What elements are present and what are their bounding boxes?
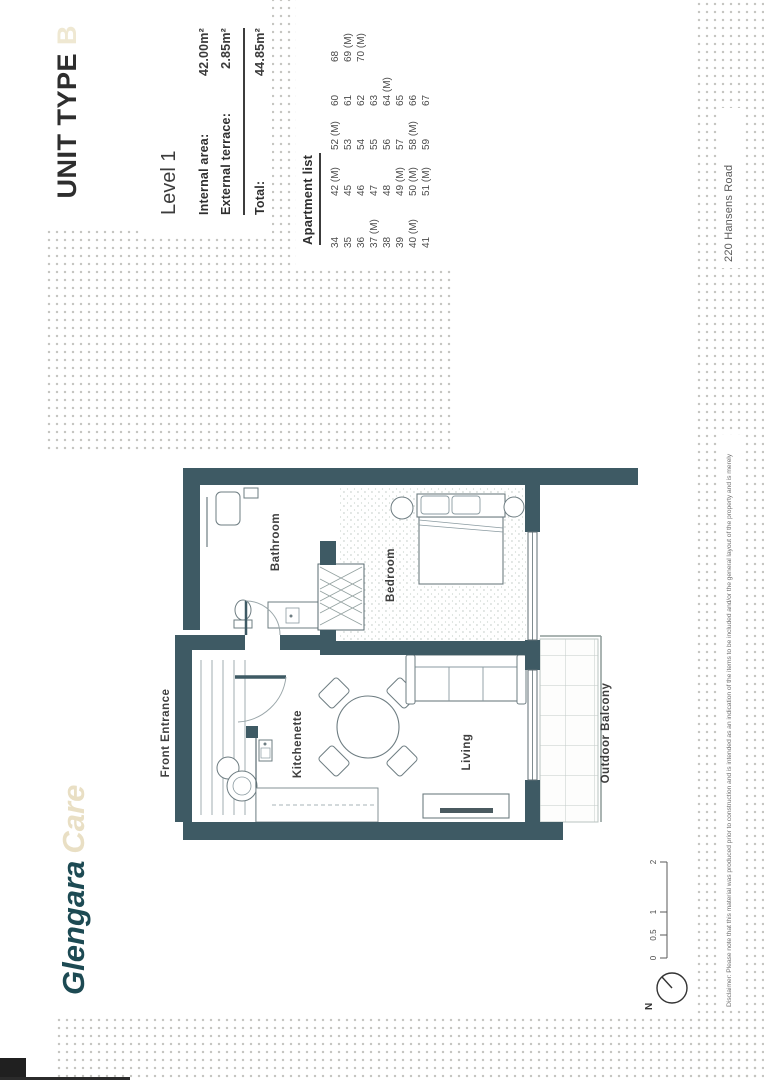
apartment-number: 47 (368, 150, 381, 196)
apartment-number: 41 (420, 196, 433, 248)
apartment-number: 56 (381, 106, 394, 150)
apartment-number: 69 (M) (342, 22, 355, 62)
sofa-arm (517, 655, 526, 704)
compass-needle (662, 977, 672, 988)
wall-stub (525, 468, 540, 532)
apartment-number: 46 (355, 150, 368, 196)
apartment-number: 67 (420, 62, 433, 106)
floor-plan (160, 435, 665, 865)
apartment-number: 36 (355, 196, 368, 248)
wall-left (183, 822, 563, 840)
external-terrace-label: External terrace: (219, 113, 233, 215)
bedside-table (504, 497, 524, 517)
address-text: 220 Hansens Road (723, 165, 735, 262)
apartment-number: 68 (329, 22, 342, 62)
panel-divider (243, 28, 245, 215)
toilet-bowl (235, 600, 251, 620)
wall-stub (320, 630, 336, 655)
apartment-number: 70 (M) (355, 22, 368, 62)
pillow (452, 496, 480, 514)
apartment-number: 64 (M) (381, 62, 394, 106)
internal-area-label: Internal area: (197, 134, 211, 215)
apartment-column-3: 52 (M)535455565758 (M)59 (329, 106, 433, 150)
wall-stub-kitchen (246, 726, 258, 738)
room-label-bathroom: Bathroom (270, 513, 282, 571)
wall-right (183, 468, 638, 485)
scale-bar: 0 0.5 1 2 (645, 852, 679, 962)
logo: GlengaraCare (56, 785, 92, 995)
room-label-living: Living (461, 734, 473, 771)
tv-screen (440, 808, 493, 813)
room-label-outdoor-balcony: Outdoor Balcony (600, 683, 612, 784)
apartment-column-4: 6061626364 (M)656667 (329, 62, 433, 106)
apartment-number: 48 (381, 150, 394, 196)
apartment-number: 52 (M) (329, 106, 342, 150)
apartment-number: 57 (394, 106, 407, 150)
dot-pattern-left-strip (55, 1018, 760, 1080)
wall-stub (525, 640, 540, 670)
vanity-faucet (290, 615, 293, 618)
unit-type-title: UNIT TYPE (52, 53, 82, 199)
wall-stub (320, 541, 336, 565)
north-label: N (644, 1003, 655, 1010)
north-compass: N (632, 958, 694, 1018)
apartment-number: 58 (M) (407, 106, 420, 150)
apartment-number: 60 (329, 62, 342, 106)
apartment-list: Apartment list 34353637 (M)383940 (M)41 … (300, 0, 433, 265)
apartment-number: 40 (M) (407, 196, 420, 248)
total-label: Total: (253, 181, 267, 215)
scale-tick-05: 0.5 (649, 929, 658, 941)
total-value: 44.85m² (253, 28, 267, 76)
sofa (414, 655, 518, 701)
wall-bathroom-left-lower (280, 635, 325, 650)
apartment-list-underline (319, 153, 321, 245)
bedside-table (391, 497, 413, 519)
apartment-number: 51 (M) (420, 150, 433, 196)
disclaimer-text: Disclaimer: Please note that this materi… (726, 454, 733, 1007)
kitchen-faucet (264, 743, 267, 746)
apartment-number: 45 (342, 150, 355, 196)
apartment-number: 59 (420, 106, 433, 150)
scale-tick-1: 1 (649, 909, 658, 914)
level-label: Level 1 (158, 28, 181, 215)
apartment-column-5: 6869 (M)70 (M) (329, 22, 433, 62)
apartment-column-2: 42 (M)4546474849 (M)50 (M)51 (M) (329, 150, 433, 196)
wall-top-bathroom (183, 468, 200, 630)
bathroom-shelf (244, 488, 258, 498)
apartment-number: 35 (342, 196, 355, 248)
external-terrace-value: 2.85m² (219, 28, 233, 69)
balcony-tiles (540, 639, 598, 822)
apartment-columns: 34353637 (M)383940 (M)41 42 (M)454647484… (329, 0, 433, 248)
info-panel: Level 1 Internal area: 42.00m² External … (140, 20, 275, 235)
washing-machine (227, 771, 257, 801)
logo-primary: Glengara (56, 861, 91, 995)
apartment-number: 49 (M) (394, 150, 407, 196)
apartment-number: 38 (381, 196, 394, 248)
pillow (421, 496, 449, 514)
apartment-number: 63 (368, 62, 381, 106)
apartment-number: 62 (355, 62, 368, 106)
vanity (268, 602, 320, 628)
wall-top-corridor (175, 650, 192, 822)
toilet-cistern (234, 620, 252, 628)
apartment-number: 55 (368, 106, 381, 150)
unit-type-suffix: B (52, 25, 82, 45)
floorplan-sheet: GlengaraCare UNIT TYPE B Level 1 Interna… (0, 0, 764, 1080)
apartment-number: 42 (M) (329, 150, 342, 196)
tv-unit (423, 794, 509, 818)
wardrobe (318, 564, 364, 630)
apartment-number: 66 (407, 62, 420, 106)
apartment-list-title: Apartment list (300, 0, 315, 245)
room-label-front-entrance: Front Entrance (160, 689, 172, 778)
apartment-number: 61 (342, 62, 355, 106)
sofa-arm (406, 655, 415, 704)
area-row-terrace: External terrace: 2.85m² (219, 28, 233, 215)
wall-stub (525, 780, 540, 822)
apartment-number: 54 (355, 106, 368, 150)
apartment-number: 39 (394, 196, 407, 248)
shower-seat (216, 492, 240, 525)
apartment-number: 37 (M) (368, 196, 381, 248)
room-label-kitchenette: Kitchenette (292, 710, 304, 778)
room-label-bedroom: Bedroom (385, 548, 397, 602)
area-row-internal: Internal area: 42.00m² (197, 28, 211, 215)
dining-table (337, 696, 399, 758)
area-row-total: Total: 44.85m² (253, 28, 267, 215)
apartment-column-1: 34353637 (M)383940 (M)41 (329, 196, 433, 248)
logo-secondary: Care (56, 785, 91, 854)
wall-living-bedroom (336, 641, 528, 655)
apartment-number: 50 (M) (407, 150, 420, 196)
apartment-number: 65 (394, 62, 407, 106)
scale-bar-line (660, 862, 667, 958)
internal-area-value: 42.00m² (197, 28, 211, 76)
wall-bathroom-left-upper (175, 635, 245, 650)
page-title: UNIT TYPE B (52, 25, 83, 225)
apartment-number: 34 (329, 196, 342, 248)
apartment-number: 53 (342, 106, 355, 150)
scale-tick-2: 2 (649, 859, 658, 864)
